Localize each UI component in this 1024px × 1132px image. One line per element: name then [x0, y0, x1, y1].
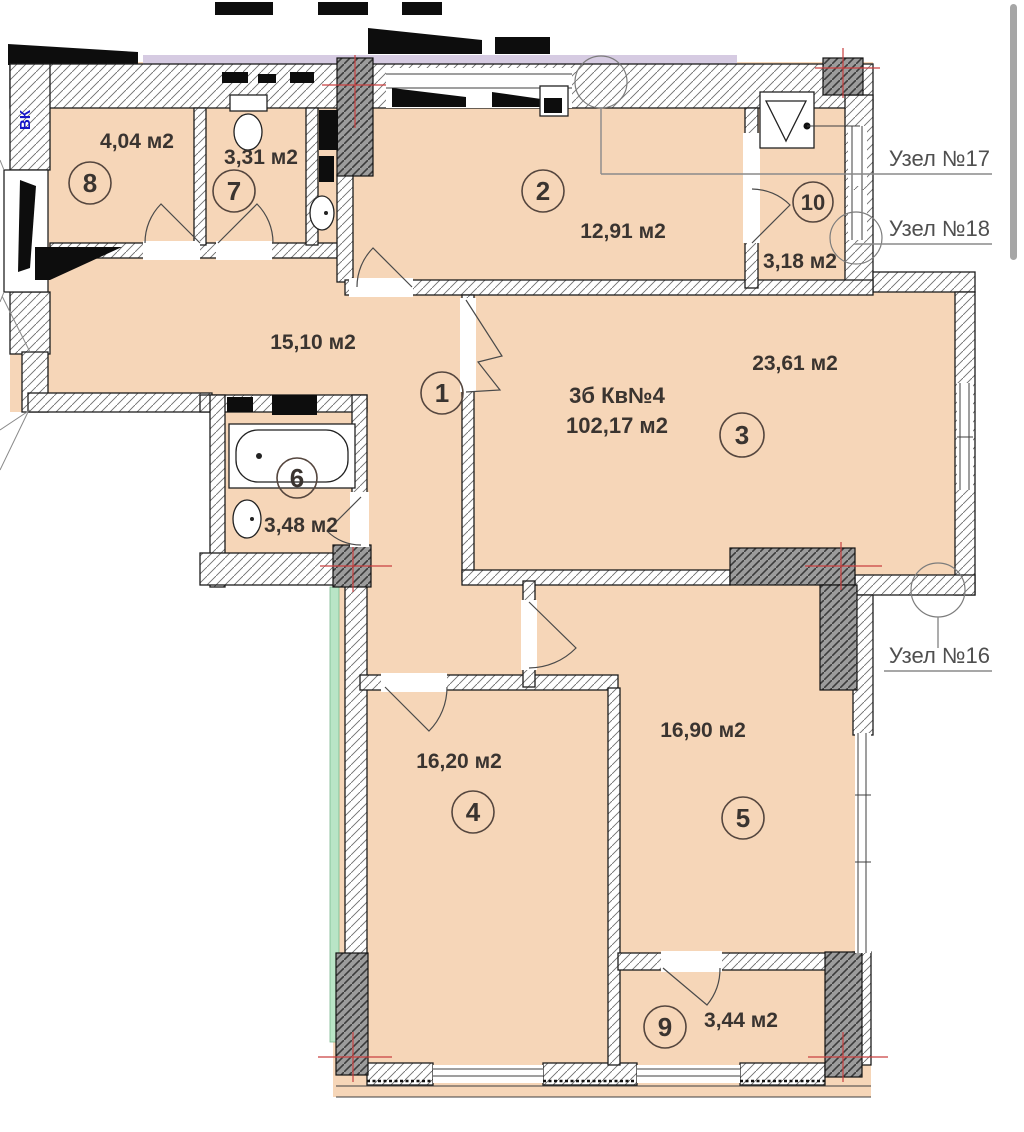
room-3-number: 3: [735, 420, 749, 450]
apartment-title-line2: 102,17 м2: [566, 413, 668, 438]
room-9-number: 9: [658, 1012, 672, 1042]
floor-plan-page: 1 2 3 4 5 6 7 8 9 10 15,10 м2 12,91 м2 2…: [0, 0, 1024, 1132]
top-accent-strip: [143, 55, 737, 64]
scrollbar-thumb[interactable]: [1010, 4, 1017, 260]
room-7-area: 3,31 м2: [224, 146, 298, 169]
room-10-number: 10: [801, 190, 825, 215]
room-8-number: 8: [83, 168, 97, 198]
room-2-area: 12,91 м2: [580, 220, 666, 243]
room-9-area: 3,44 м2: [704, 1009, 778, 1032]
room-6-area: 3,48 м2: [264, 514, 338, 537]
room-6-number: 6: [290, 463, 304, 493]
room-4-area: 16,20 м2: [416, 750, 502, 773]
washer-shelf-icons: [227, 395, 317, 415]
sink-icon-wc: [310, 196, 334, 230]
room-5-number: 5: [736, 803, 750, 833]
callout-uzel-18: Узел №18: [889, 216, 990, 241]
water-duct-label: ВК: [17, 109, 34, 130]
room-1-area: 15,10 м2: [270, 331, 356, 354]
room-7-number: 7: [227, 176, 241, 206]
floor-plan-drawing: 1 2 3 4 5 6 7 8 9 10 15,10 м2 12,91 м2 2…: [0, 0, 1024, 1132]
callout-uzel-17: Узел №17: [889, 146, 990, 171]
room-5-area: 16,90 м2: [660, 719, 746, 742]
room-2-number: 2: [536, 176, 550, 206]
apartment-title-line1: 3б Кв№4: [569, 383, 665, 408]
room-4-number: 4: [466, 797, 481, 827]
sink-icon-bathroom: [233, 500, 261, 538]
room-1-number: 1: [435, 378, 449, 408]
callout-uzel-16: Узел №16: [889, 643, 990, 668]
room-10-area: 3,18 м2: [763, 250, 837, 273]
room-8-area: 4,04 м2: [100, 130, 174, 153]
room-3-area: 23,61 м2: [752, 352, 838, 375]
